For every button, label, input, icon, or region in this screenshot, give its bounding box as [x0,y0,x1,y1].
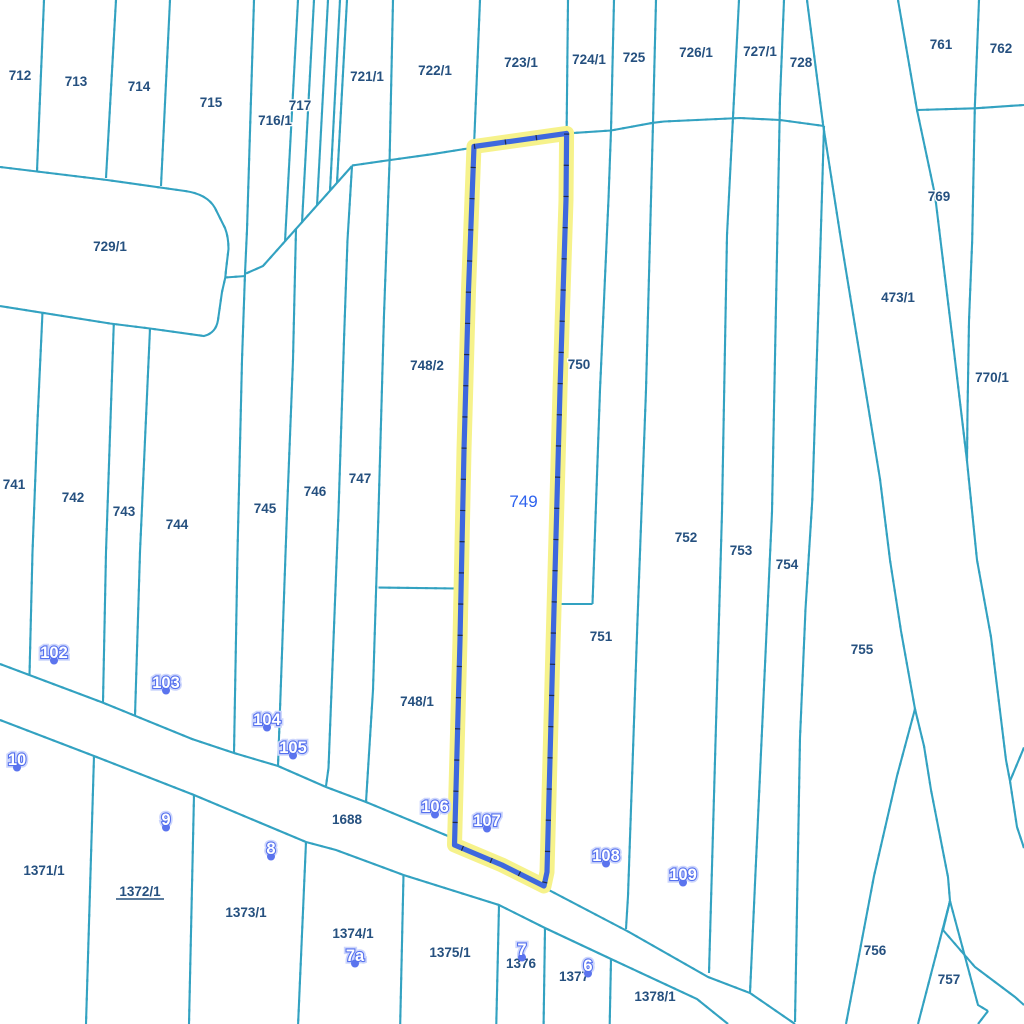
svg-text:748/2: 748/2 [410,358,444,373]
svg-text:723/1: 723/1 [504,55,538,70]
svg-text:717: 717 [289,98,312,113]
svg-text:713: 713 [65,74,88,89]
svg-text:1378/1: 1378/1 [634,989,676,1004]
svg-text:1688: 1688 [332,812,363,827]
svg-text:109: 109 [669,866,697,884]
svg-text:754: 754 [776,557,799,572]
svg-text:7a: 7a [346,947,365,965]
svg-text:9: 9 [161,811,170,829]
svg-text:7: 7 [517,941,526,959]
svg-text:1374/1: 1374/1 [332,926,374,941]
svg-text:1375/1: 1375/1 [429,945,471,960]
svg-text:107: 107 [473,812,501,830]
svg-text:105: 105 [279,739,307,757]
svg-text:748/1: 748/1 [400,694,434,709]
svg-text:10: 10 [8,751,26,769]
svg-text:742: 742 [62,490,85,505]
svg-text:752: 752 [675,530,698,545]
svg-text:747: 747 [349,471,372,486]
svg-text:755: 755 [851,642,874,657]
svg-text:714: 714 [128,79,151,94]
svg-text:726/1: 726/1 [679,45,713,60]
svg-text:103: 103 [152,674,180,692]
svg-text:725: 725 [623,50,646,65]
svg-text:108: 108 [592,847,620,865]
svg-text:769: 769 [928,189,951,204]
svg-text:753: 753 [730,543,753,558]
svg-text:716/1: 716/1 [258,113,292,128]
svg-text:102: 102 [40,644,68,662]
svg-text:761: 761 [930,37,953,52]
svg-text:727/1: 727/1 [743,44,777,59]
svg-text:751: 751 [590,629,613,644]
svg-text:1373/1: 1373/1 [225,905,267,920]
svg-text:724/1: 724/1 [572,52,606,67]
svg-text:762: 762 [990,41,1013,56]
svg-text:721/1: 721/1 [350,69,384,84]
svg-text:770/1: 770/1 [975,370,1009,385]
svg-text:715: 715 [200,95,223,110]
svg-text:8: 8 [266,840,275,858]
svg-text:743: 743 [113,504,136,519]
svg-text:746: 746 [304,484,327,499]
svg-text:6: 6 [583,957,592,975]
svg-text:1372/1: 1372/1 [119,884,161,899]
svg-text:745: 745 [254,501,277,516]
svg-text:106: 106 [421,798,449,816]
svg-text:722/1: 722/1 [418,63,452,78]
svg-text:729/1: 729/1 [93,239,127,254]
svg-text:741: 741 [3,477,26,492]
svg-text:1371/1: 1371/1 [23,863,65,878]
svg-text:757: 757 [938,972,961,987]
svg-text:749: 749 [509,492,537,511]
svg-text:473/1: 473/1 [881,290,915,305]
svg-text:756: 756 [864,943,887,958]
svg-text:744: 744 [166,517,189,532]
svg-text:712: 712 [9,68,32,83]
svg-text:104: 104 [253,711,281,729]
svg-text:728: 728 [790,55,813,70]
svg-text:750: 750 [568,357,591,372]
